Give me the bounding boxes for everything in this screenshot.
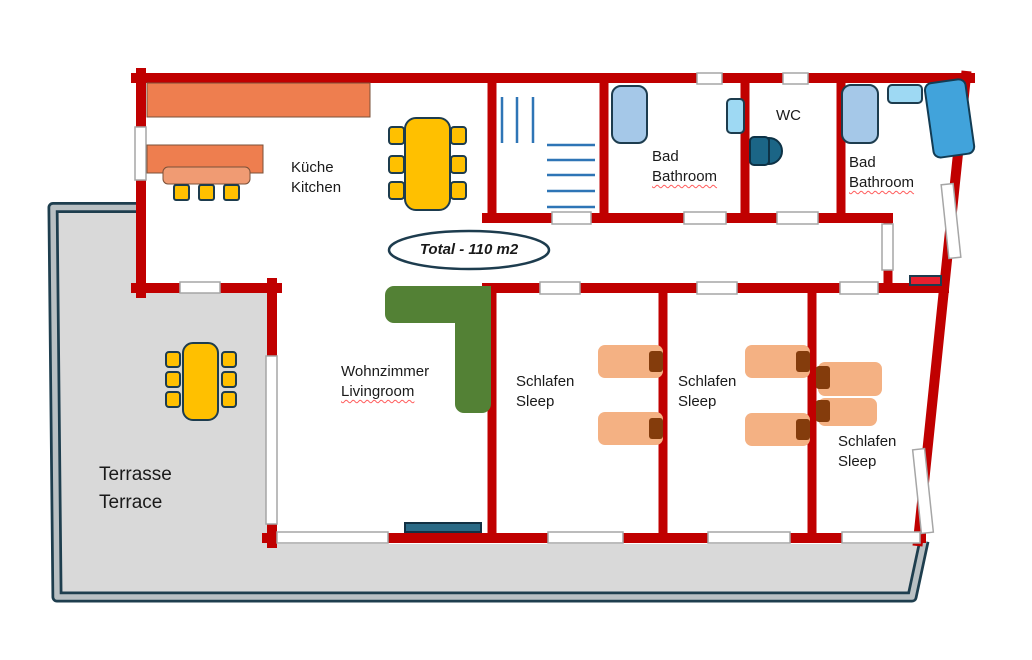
label-bath-left-de: Bad [652, 147, 717, 167]
chair [451, 182, 466, 199]
chair [222, 372, 236, 387]
kitchen-stool-2 [199, 185, 214, 200]
sink-right [888, 85, 922, 103]
tv-sideboard [405, 523, 481, 532]
label-bath-left-en: Bathroom [652, 167, 717, 187]
pillow [816, 400, 830, 422]
kitchen-counter-top [147, 83, 370, 117]
chair [389, 127, 404, 144]
kitchen-island [163, 167, 250, 184]
door-living-terrace [277, 532, 388, 543]
label-bath-right-en: Bathroom [849, 173, 914, 193]
window-kitchen-left [135, 127, 146, 180]
table [405, 118, 450, 210]
shower-right [842, 85, 878, 143]
label-bedroom1-de: Schlafen [516, 372, 574, 392]
room-label-wc: WC [776, 106, 801, 126]
label-kitchen-de: Küche [291, 158, 341, 178]
kitchen-stool-1 [174, 185, 189, 200]
chair [451, 127, 466, 144]
room-label-bathroom-left: Bad Bathroom [652, 147, 717, 187]
pillow [649, 351, 663, 372]
room-label-bathroom-right: Bad Bathroom [849, 153, 914, 193]
floor-plan: Küche Kitchen Bad Bathroom WC Bad Bathro… [0, 0, 1032, 660]
door-bedroom1 [540, 282, 580, 294]
label-bedroom3-en: Sleep [838, 452, 896, 472]
floor-plan-drawing [0, 0, 1032, 660]
chair [166, 352, 180, 367]
label-bath-right-de: Bad [849, 153, 914, 173]
chair [166, 372, 180, 387]
sink-left [727, 99, 744, 133]
label-kitchen-en: Kitchen [291, 178, 341, 198]
room-label-bedroom3: Schlafen Sleep [838, 432, 896, 472]
pillow [796, 419, 810, 440]
label-bedroom2-en: Sleep [678, 392, 736, 412]
chair [389, 156, 404, 173]
dining-table-kitchen [389, 118, 466, 210]
room-label-terrace: Terrasse Terrace [99, 461, 172, 517]
total-area-label: Total - 110 m2 [389, 241, 549, 258]
chair [222, 392, 236, 407]
label-wc: WC [776, 106, 801, 126]
pillow [796, 351, 810, 372]
door-bathroom-right [882, 224, 893, 270]
table [183, 343, 218, 420]
window-bedroom2 [708, 532, 790, 543]
label-bedroom2-de: Schlafen [678, 372, 736, 392]
room-label-kitchen: Küche Kitchen [291, 158, 341, 198]
door-bedroom2 [697, 282, 737, 294]
shower-left [612, 86, 647, 143]
room-label-bedroom1: Schlafen Sleep [516, 372, 574, 412]
chair [389, 182, 404, 199]
chair [451, 156, 466, 173]
label-terrace-en: Terrace [99, 489, 172, 517]
label-bedroom3-de: Schlafen [838, 432, 896, 452]
pillow [649, 418, 663, 439]
pillow [816, 366, 830, 389]
kitchen-stool-3 [224, 185, 239, 200]
door-kitchen-terrace [180, 282, 220, 293]
door-wc [777, 212, 818, 224]
label-bedroom1-en: Sleep [516, 392, 574, 412]
chair [166, 392, 180, 407]
label-terrace-de: Terrasse [99, 461, 172, 489]
radiator [910, 276, 941, 285]
label-living-de: Wohnzimmer [341, 362, 429, 382]
door-bedroom3 [840, 282, 878, 294]
window-living-left [266, 356, 277, 524]
door-bathroom-left [684, 212, 726, 224]
room-label-living: Wohnzimmer Livingroom [341, 362, 429, 402]
door-utility [552, 212, 591, 224]
room-label-bedroom2: Schlafen Sleep [678, 372, 736, 412]
bedroom3-beds [816, 362, 882, 426]
window-bedroom3 [842, 532, 920, 543]
chair [222, 352, 236, 367]
window-top-1 [697, 73, 722, 84]
window-top-2 [783, 73, 808, 84]
window-bedroom1 [548, 532, 623, 543]
toilet [750, 137, 782, 165]
label-living-en: Livingroom [341, 382, 429, 402]
